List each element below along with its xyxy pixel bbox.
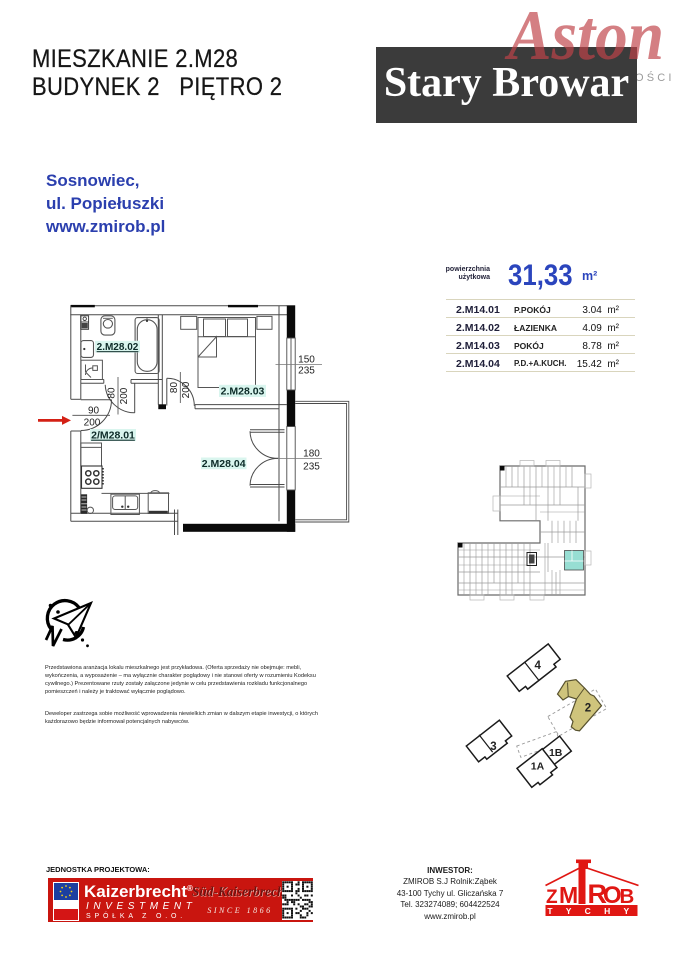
svg-text:1B: 1B [549, 747, 563, 759]
svg-text:80: 80 [107, 387, 118, 399]
svg-text:2.M28.04: 2.M28.04 [202, 458, 246, 470]
svg-text:2.M28.03: 2.M28.03 [221, 386, 265, 398]
svg-text:90: 90 [88, 406, 100, 417]
svg-text:200: 200 [181, 381, 192, 398]
svg-text:B: B [620, 885, 635, 908]
svg-text:2.M28.02: 2.M28.02 [97, 342, 139, 353]
svg-text:235: 235 [298, 366, 315, 377]
svg-text:235: 235 [303, 461, 320, 472]
svg-text:150: 150 [298, 355, 315, 366]
svg-text:Z: Z [546, 887, 558, 908]
svg-text:4: 4 [534, 660, 541, 672]
svg-text:200: 200 [119, 387, 130, 404]
svg-text:T Y C H Y: T Y C H Y [547, 906, 634, 916]
svg-text:2: 2 [585, 703, 591, 715]
svg-text:80: 80 [169, 382, 180, 394]
svg-text:M: M [559, 882, 578, 908]
svg-text:180: 180 [303, 449, 320, 460]
svg-text:200: 200 [84, 417, 101, 428]
svg-text:1A: 1A [531, 761, 545, 773]
svg-text:3: 3 [490, 741, 496, 753]
svg-text:2/M28.01: 2/M28.01 [91, 430, 135, 442]
